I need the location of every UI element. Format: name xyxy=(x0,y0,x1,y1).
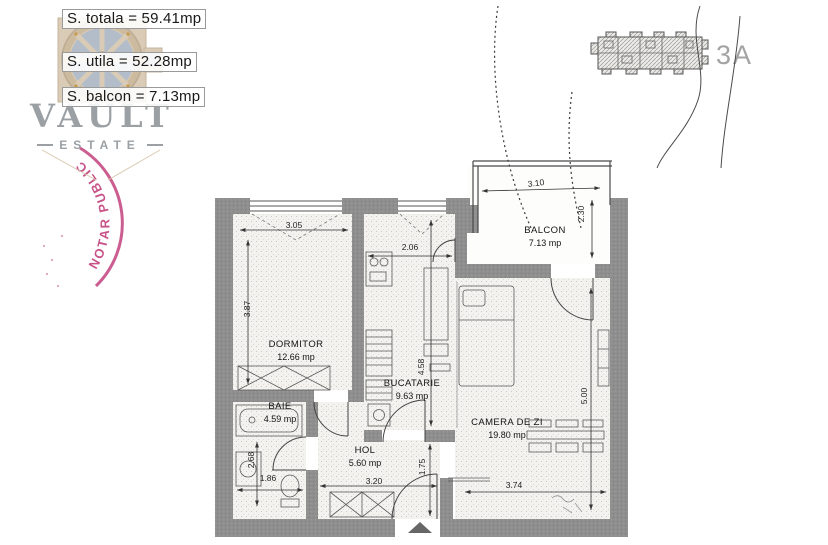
scanned-floorplan-page: S. totala = 59.41mp S. utila = 52.28mp S… xyxy=(0,0,828,545)
room-name: DORMITOR xyxy=(252,340,340,351)
room-label-balcon: BALCON 7.13 mp xyxy=(512,226,578,248)
total-area-label: S. totala = 59.41mp xyxy=(62,9,206,29)
brand-logo: VAULT ESTATE xyxy=(30,100,170,152)
room-label-dormitor: DORMITOR 12.66 mp xyxy=(252,340,340,362)
room-name: HOL xyxy=(335,446,395,457)
room-area: 19.80 mp xyxy=(452,430,562,440)
room-label-bucatarie: BUCATARIE 9.63 mp xyxy=(372,379,452,401)
dim-baie-height: 2.68 xyxy=(246,447,256,473)
room-name: BUCATARIE xyxy=(372,379,452,390)
room-area: 5.60 mp xyxy=(335,458,395,468)
room-area: 4.59 mp xyxy=(250,414,310,424)
dim-baie-width: 1.86 xyxy=(250,473,286,483)
dash-right-decoration xyxy=(147,144,163,146)
dim-camera-height: 5.00 xyxy=(579,383,589,409)
usable-area-label: S. utila = 52.28mp xyxy=(62,52,197,72)
dim-hol-height: 1.75 xyxy=(417,454,427,480)
notary-stamp: NOTAR PUBLIC xyxy=(0,140,150,300)
dim-bucatarie-width: 2.06 xyxy=(392,242,428,252)
room-area: 12.66 mp xyxy=(252,352,340,362)
room-label-camera-de-zi: CAMERA DE ZI 19.80 mp xyxy=(452,418,562,440)
room-name: BALCON xyxy=(512,226,578,237)
room-area: 9.63 mp xyxy=(372,391,452,401)
dim-dormitor-height: 3.87 xyxy=(242,296,252,322)
dim-bucatarie-height: 4.58 xyxy=(416,354,426,380)
brand-subtitle: ESTATE xyxy=(59,138,141,152)
dim-hol-width: 3.20 xyxy=(356,476,392,486)
dim-balcon-height: 2.30 xyxy=(576,201,586,227)
room-area: 7.13 mp xyxy=(512,238,578,248)
room-name: BAIE xyxy=(250,402,310,413)
dim-dormitor-width: 3.05 xyxy=(276,220,312,230)
room-name: CAMERA DE ZI xyxy=(452,418,562,429)
room-label-hol: HOL 5.60 mp xyxy=(335,446,395,468)
balcony-area-label: S. balcon = 7.13mp xyxy=(62,87,205,107)
dim-camera-width: 3.74 xyxy=(496,480,532,490)
dash-left-decoration xyxy=(37,144,53,146)
unit-label: 3A xyxy=(716,40,753,71)
room-label-baie: BAIE 4.59 mp xyxy=(250,402,310,424)
